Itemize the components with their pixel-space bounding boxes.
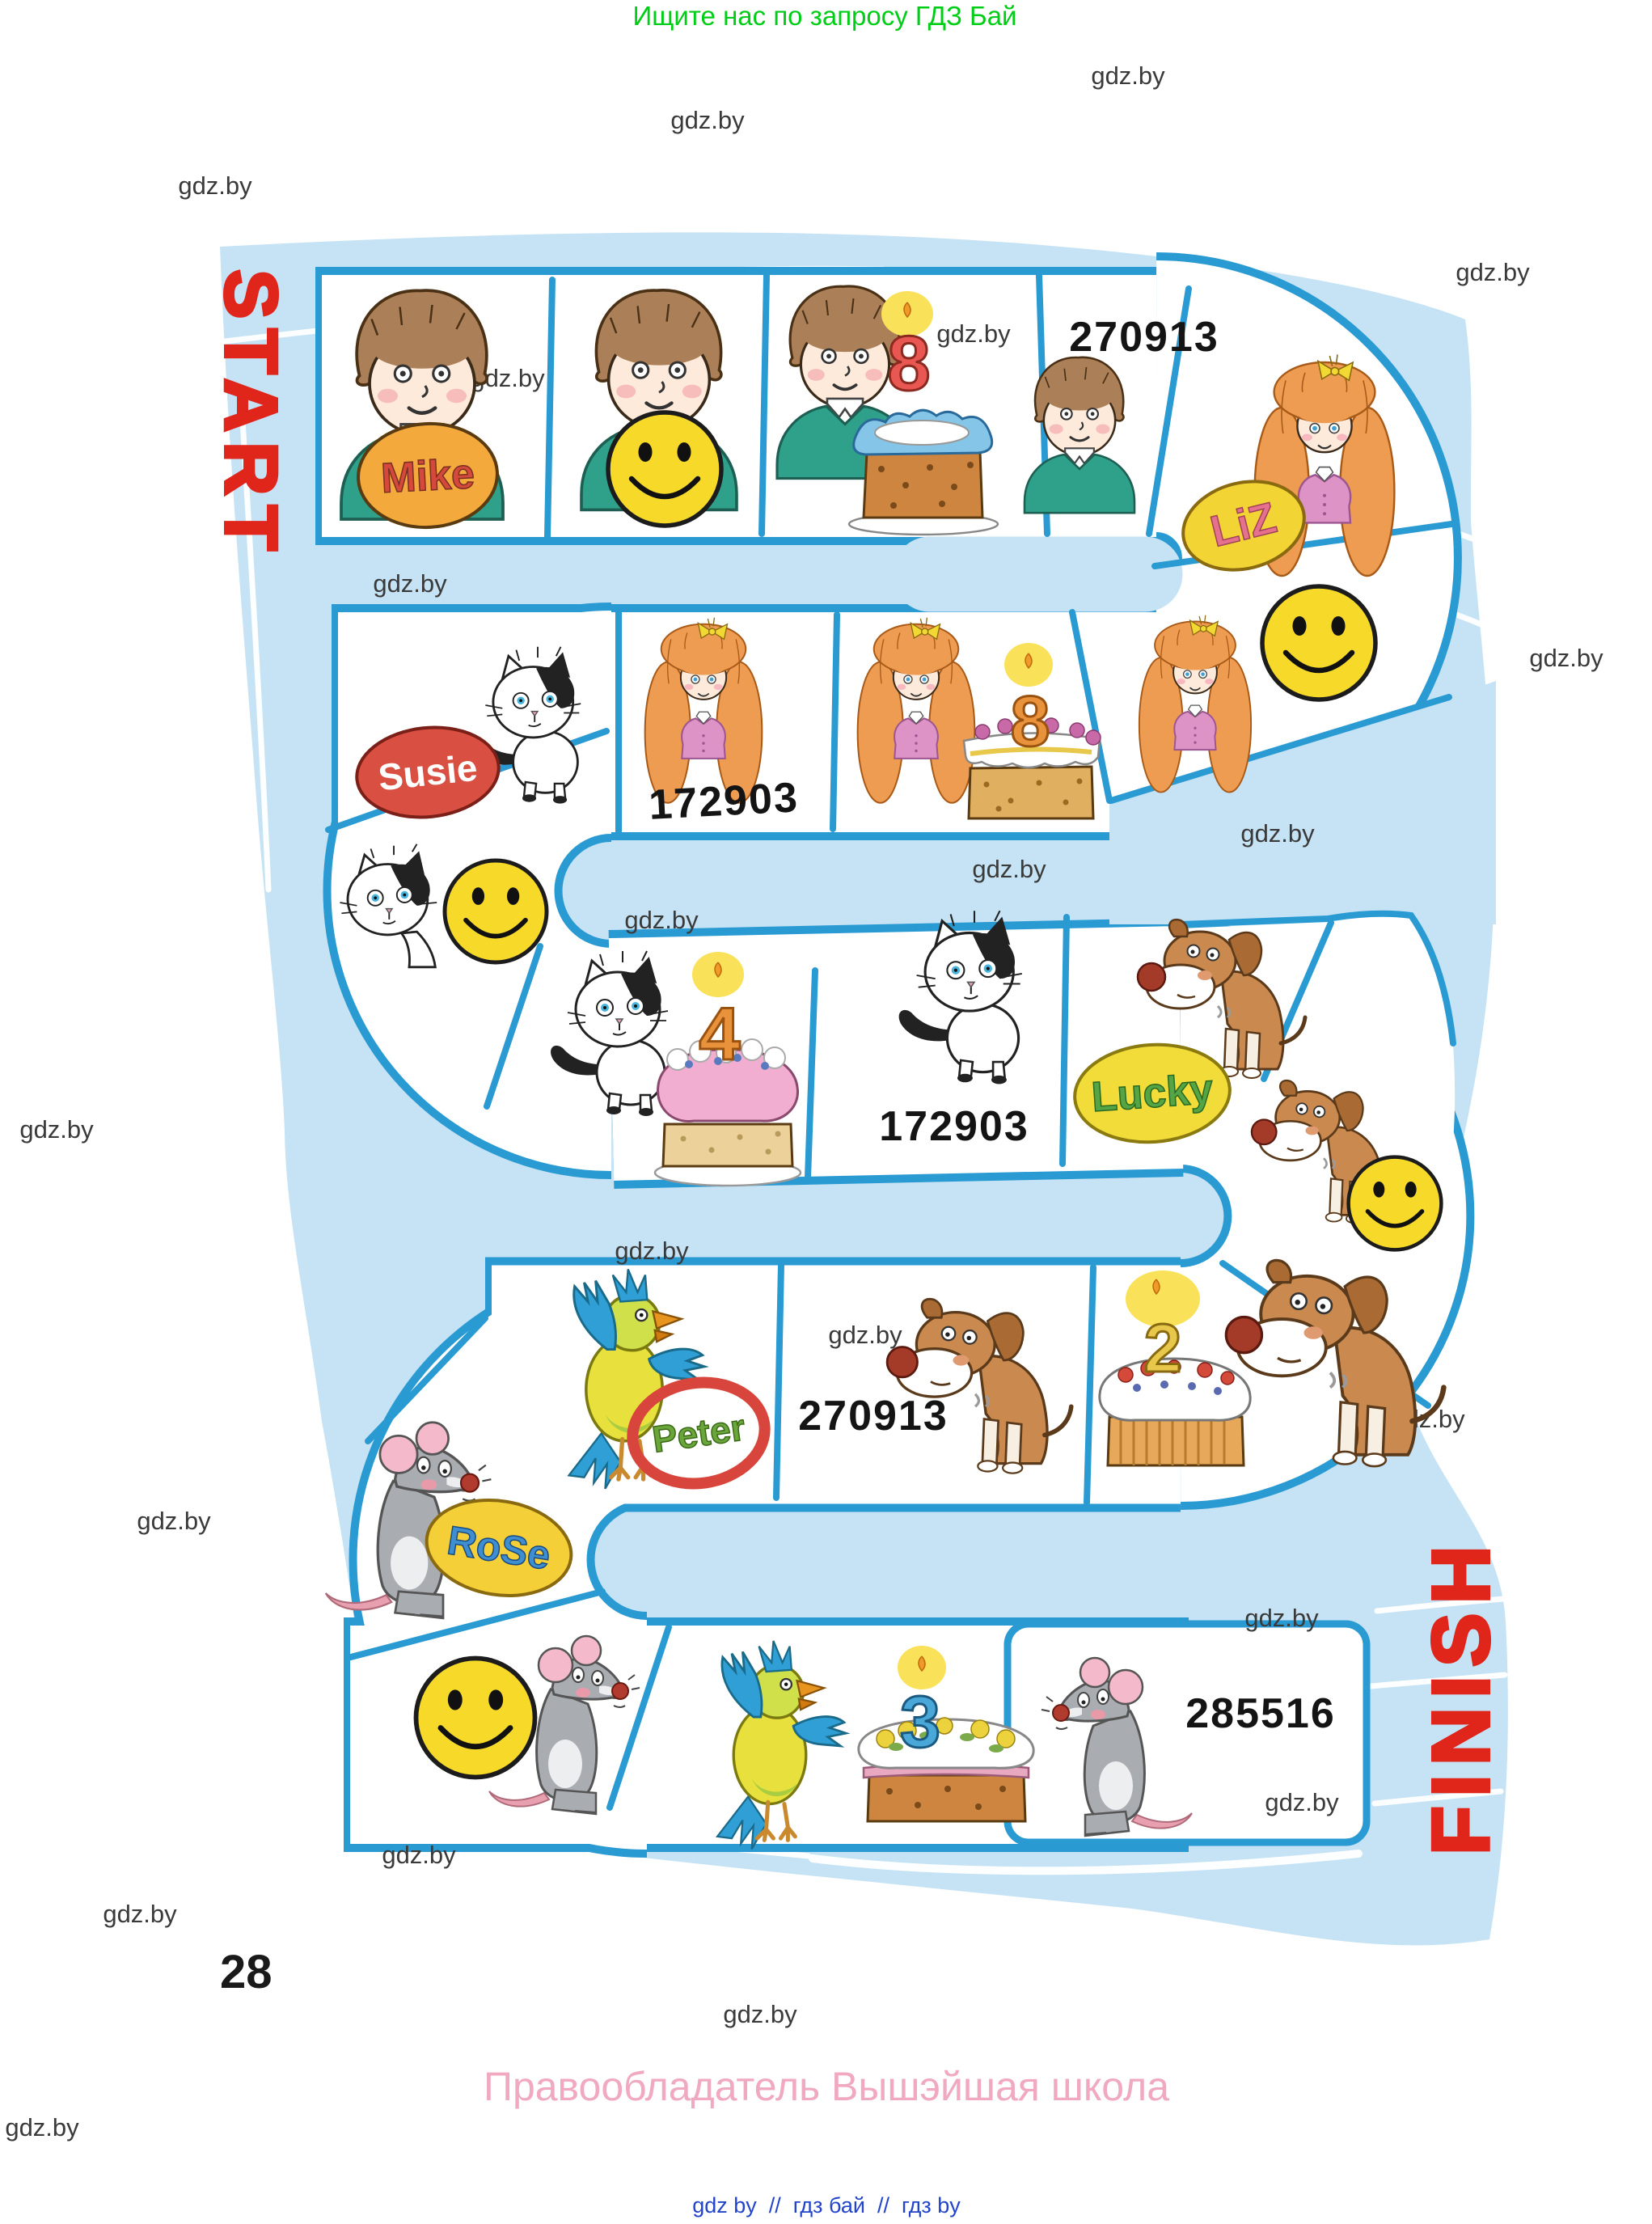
svg-text:285516: 285516: [1185, 1690, 1336, 1737]
svg-text:2: 2: [1144, 1310, 1182, 1386]
svg-text:gdz.by: gdz.by: [137, 1507, 211, 1535]
svg-text:gdz.by: gdz.by: [936, 319, 1011, 348]
svg-text:172903: 172903: [879, 1103, 1029, 1150]
svg-text:gdz.by: gdz.by: [828, 1321, 902, 1349]
svg-text:gdz.by: gdz.by: [670, 106, 745, 134]
svg-text:Lucky: Lucky: [1090, 1066, 1215, 1121]
svg-text:172903: 172903: [648, 774, 800, 829]
svg-text:8: 8: [887, 320, 930, 407]
svg-text:3: 3: [900, 1682, 940, 1763]
svg-text:gdz.by: gdz.by: [615, 1237, 689, 1265]
svg-text:gdz.by: gdz.by: [373, 569, 447, 598]
svg-text:gdz.by: gdz.by: [1265, 1788, 1339, 1816]
svg-text:gdz.by: gdz.by: [972, 855, 1046, 883]
svg-text:gdz.by: gdz.by: [723, 2000, 797, 2028]
svg-text:28: 28: [220, 1946, 273, 1998]
svg-text:gdz.by: gdz.by: [382, 1841, 456, 1869]
svg-text:START: START: [209, 269, 292, 560]
svg-text:FINISH: FINISH: [1416, 1537, 1506, 1855]
svg-text:gdz.by: gdz.by: [1456, 258, 1530, 286]
svg-text:Правообладатель Вышэйшая школа: Правообладатель Вышэйшая школа: [484, 2064, 1169, 2109]
svg-text:Ищите нас по запросу ГДЗ Бай: Ищите нас по запросу ГДЗ Бай: [633, 1, 1017, 31]
svg-text:Mike: Mike: [380, 450, 475, 502]
svg-text:gdz.by: gdz.by: [5, 2113, 79, 2142]
svg-text:gdz.by: gdz.by: [19, 1115, 94, 1144]
svg-text:gdz.by: gdz.by: [1244, 1604, 1319, 1632]
svg-text:270913: 270913: [1069, 314, 1219, 361]
svg-text:gdz.by: gdz.by: [1240, 819, 1315, 848]
svg-text:gdz.by: gdz.by: [624, 906, 699, 934]
svg-text:8: 8: [1011, 681, 1050, 761]
svg-text:270913: 270913: [798, 1393, 949, 1440]
svg-text:gdz by // гдз бай // гдз b: gdz by // гдз бай // гдз by: [692, 2193, 961, 2218]
svg-text:gdz.by: gdz.by: [103, 1900, 177, 1928]
svg-text:gdz.by: gdz.by: [1529, 644, 1603, 672]
svg-text:gdz.by: gdz.by: [178, 171, 252, 200]
svg-text:4: 4: [699, 993, 740, 1076]
svg-text:gdz.by: gdz.by: [1091, 61, 1165, 90]
